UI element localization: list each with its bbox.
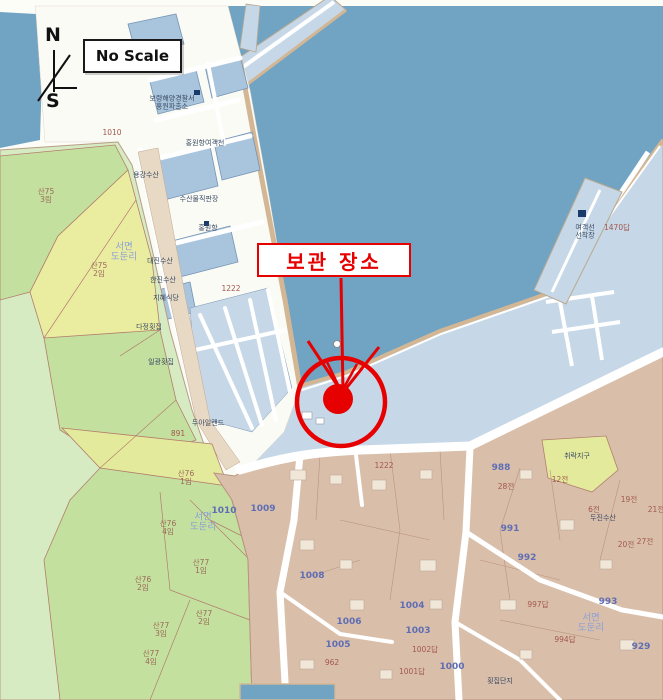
no-scale-label: No Scale <box>96 47 169 65</box>
storage-location-dot <box>323 384 353 414</box>
compass-south-label: S <box>46 90 60 112</box>
no-scale-box: No Scale <box>83 39 182 73</box>
forest-parcel-3 <box>44 468 252 700</box>
compass-north-label: N <box>45 24 61 46</box>
storage-location-callout: 보관 장소 <box>257 243 411 277</box>
map-canvas: 서면 도둔리서면 도둔리서면 도둔리1010100810099889919929… <box>0 0 663 700</box>
sea-left-inlet <box>0 12 42 148</box>
map-svg <box>0 0 663 700</box>
dock-ring-icon <box>334 341 341 348</box>
ferry-terminal-icon <box>578 210 586 217</box>
sea-bottom-inlet <box>240 684 335 700</box>
